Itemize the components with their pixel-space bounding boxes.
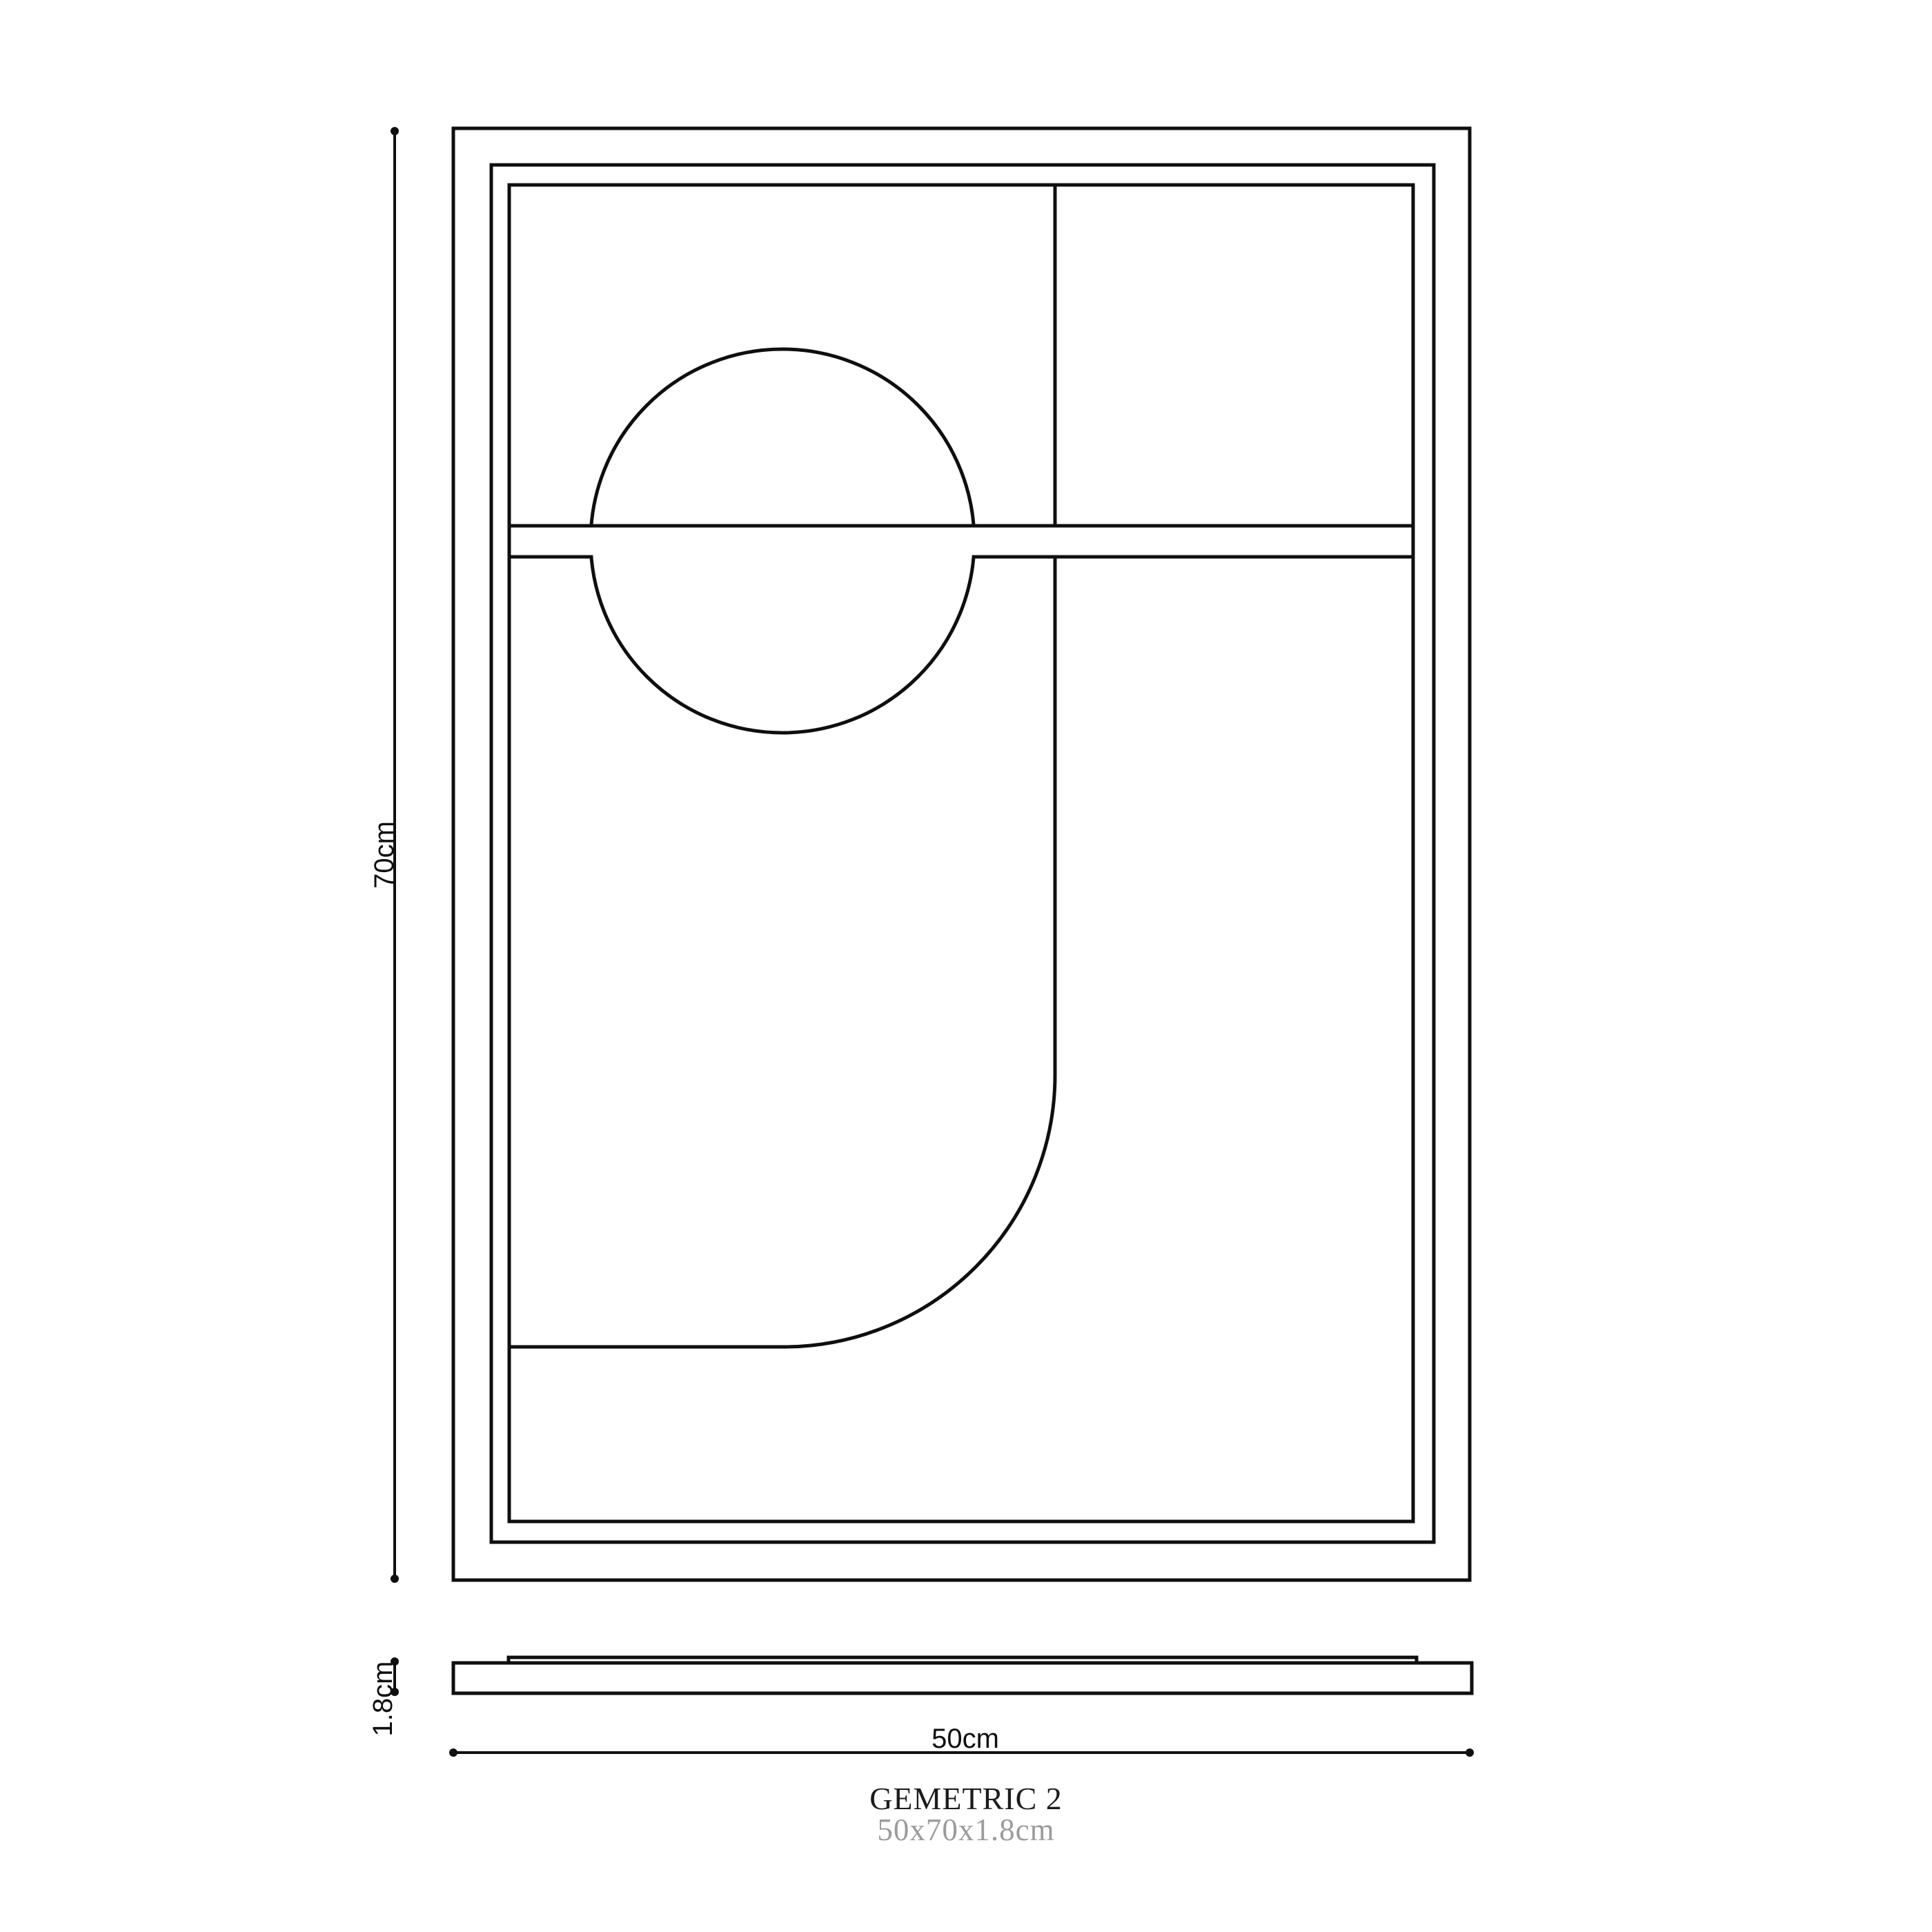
technical-drawing-sheet: 70cm 1.8cm 50cm GEMETRIC 2 50x70x1.8cm <box>0 0 1932 1932</box>
frame-outer-rect <box>453 128 1470 1580</box>
drawing-canvas: 70cm 1.8cm 50cm GEMETRIC 2 50x70x1.8cm <box>0 0 1932 1932</box>
frame-inner-rect <box>509 185 1413 1521</box>
width-dim-end-dot-right <box>1466 1748 1474 1757</box>
product-dimensions-subtitle: 50x70x1.8cm <box>877 1813 1054 1847</box>
frame-middle-rect <box>491 165 1434 1542</box>
height-dim-end-dot-bottom <box>391 1575 399 1583</box>
j-curve <box>511 557 1055 1347</box>
product-title: GEMETRIC 2 <box>869 1781 1063 1816</box>
thickness-dimension-label: 1.8cm <box>368 1662 398 1737</box>
side-profile-slab <box>453 1663 1472 1693</box>
band-mask <box>511 528 1411 555</box>
width-dim-end-dot-left <box>449 1748 457 1757</box>
height-dimension-label: 70cm <box>369 821 400 889</box>
width-dimension-label: 50cm <box>931 1724 999 1754</box>
height-dim-end-dot-top <box>391 127 399 135</box>
